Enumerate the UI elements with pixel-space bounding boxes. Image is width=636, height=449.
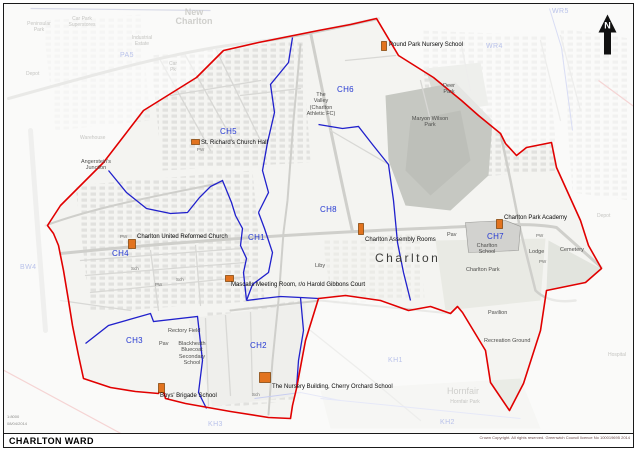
ward-map-page: N New Charlton Peninsular Park Car Park … — [0, 0, 636, 449]
poi-marker-academy — [497, 220, 503, 229]
map-canvas: N New Charlton Peninsular Park Car Park … — [3, 3, 634, 434]
poi-marker-mascalls — [226, 276, 234, 282]
poi-marker-st-richards — [192, 140, 200, 145]
charlton-school-building — [466, 221, 521, 253]
poi-marker-boys-brigade — [159, 384, 165, 393]
north-arrow-label: N — [604, 21, 611, 31]
poi-marker-pound-park-nursery — [382, 42, 387, 51]
map-geometry: N — [4, 4, 633, 433]
poi-marker-assembly-rooms — [359, 224, 364, 235]
poi-marker-charlton-united — [129, 240, 136, 249]
poi-marker-nursery-building — [260, 373, 271, 383]
ward-title: CHARLTON WARD — [9, 436, 94, 446]
copyright-text: Crown Copyright. All rights reserved. Gr… — [479, 435, 630, 440]
title-bar: CHARLTON WARD Crown Copyright. All right… — [3, 433, 634, 448]
